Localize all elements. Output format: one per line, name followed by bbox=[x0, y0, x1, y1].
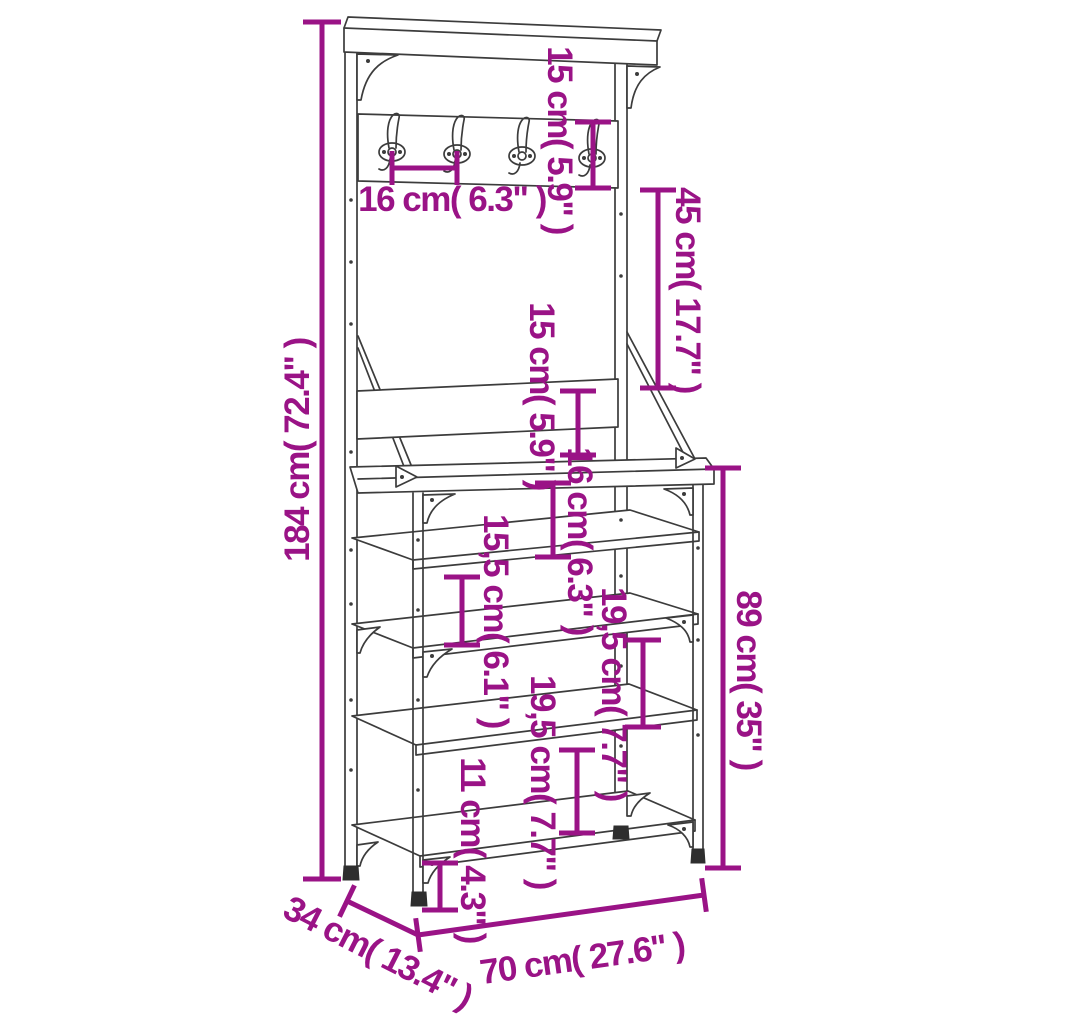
label-width: 70 cm( 27.6" ) bbox=[477, 925, 686, 992]
label-backrest-height: 15 cm( 5.9" ) bbox=[522, 302, 561, 490]
label-shelf-gap-mid: 19,5 cm( 7.7" ) bbox=[594, 587, 633, 801]
top-shelf-right-bracket bbox=[627, 66, 660, 108]
label-hook-spacing: 16 cm( 6.3" ) bbox=[358, 180, 546, 219]
label-shelf-gap-lower: 19,5 cm( 7.7" ) bbox=[523, 675, 562, 889]
label-bottom-clearance: 11 cm( 4.3" ) bbox=[453, 757, 492, 943]
top-shelf-left-bracket bbox=[357, 54, 398, 100]
dimension-diagram: 184 cm( 72.4" ) 15 cm( 5.9" ) 16 cm( 6.3… bbox=[0, 0, 1069, 1024]
label-rail-to-backrest: 45 cm( 17.7" ) bbox=[668, 187, 707, 393]
shelf-board bbox=[352, 593, 698, 658]
top-shelf bbox=[344, 17, 661, 108]
label-bench-height: 89 cm( 35" ) bbox=[729, 590, 768, 770]
label-top-shelf-gap: 16 cm( 6.3" ) bbox=[560, 447, 599, 635]
shelf-board bbox=[352, 510, 699, 569]
label-shelf-gap-upper: 15,5 cm( 6.1" ) bbox=[476, 514, 515, 728]
label-total-height: 184 cm( 72.4" ) bbox=[278, 338, 317, 562]
